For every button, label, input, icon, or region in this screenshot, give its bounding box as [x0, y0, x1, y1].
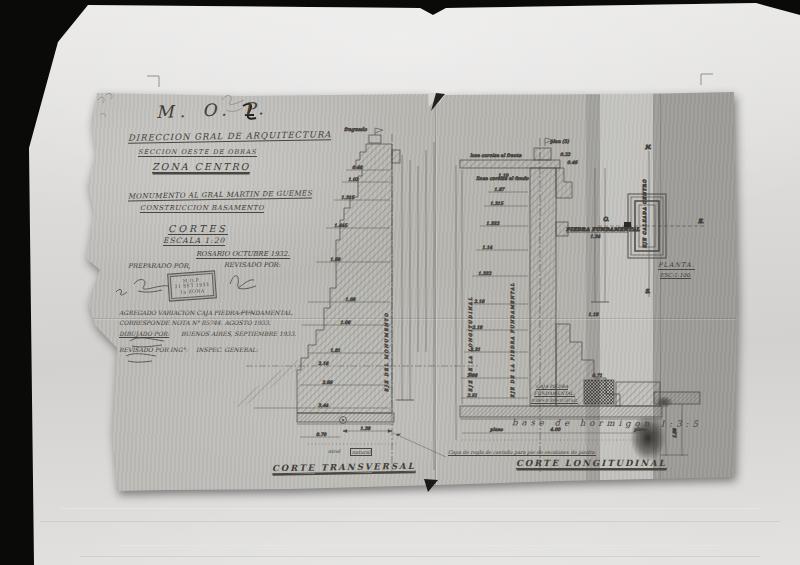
- signature-prepared: [134, 280, 168, 293]
- stamp-line-3: 1a ZONA: [180, 288, 205, 295]
- dim-value: 1.81: [330, 348, 340, 353]
- prepared-by-label: PREPARADO POR,: [128, 262, 190, 270]
- title-cortes: CORTES: [168, 223, 228, 235]
- dim-value: 1.87: [494, 187, 505, 192]
- leader-arrow: [396, 434, 401, 437]
- dim-value: 2.51: [467, 393, 477, 398]
- foundation-stone-box: [584, 380, 614, 404]
- inspector-general-label: INSPEC. GENERAL:: [196, 346, 258, 353]
- monument-profile-transversal: [297, 144, 392, 413]
- cornice-note: losa cornisa al frente: [470, 153, 522, 158]
- axis-label-longitudinal: EJE DE LA LONGITUDINAL: [468, 296, 473, 392]
- revised-by-eng-label: REVISADO POR ING°:: [119, 346, 188, 353]
- dim-value: 1.445: [334, 223, 348, 228]
- box-top-dim: 0.71: [592, 373, 602, 378]
- drawn-by-label: DIBUJADO POR:: [119, 330, 169, 338]
- revised-by-label: REVISADO POR:: [224, 261, 280, 269]
- dim-value: 1.315: [490, 201, 504, 206]
- finial: [369, 135, 381, 143]
- dim-value: 2.16: [318, 361, 329, 366]
- dim-value: 1.88: [330, 257, 341, 262]
- cornice-overhang: [392, 150, 400, 163]
- dim-value: 3.44: [318, 403, 328, 408]
- title-city-date: ROSARIO OCTUBRE 1932.: [196, 250, 290, 259]
- step-layer-note: Capa de regla de castaño para pie de esc…: [448, 449, 596, 456]
- dim-value: 2.66: [322, 380, 333, 385]
- section-transversal: 0.46 1.02 1.315 1.445 1.88 1.08 1.06 1.8…: [234, 126, 478, 474]
- side-dim: 0.22: [560, 152, 571, 157]
- title-construccion: CONSTRUCCION BASAMENTO: [140, 204, 264, 213]
- ground-note-natural: natural: [350, 448, 372, 456]
- foundation-stone-label: PIEDRA FUNDAMENTAL: [566, 226, 640, 232]
- north-label: N.: [645, 144, 651, 150]
- city-date-2: BUENOS AIRES, SEPTIEMBRE 1933.: [181, 330, 296, 337]
- dim-value: 1.02: [348, 177, 359, 182]
- note-leader: [393, 433, 446, 457]
- dim-value: 2.16: [474, 299, 485, 304]
- drawing-linework: 0.46 1.02 1.315 1.445 1.88 1.08 1.06 1.8…: [0, 0, 800, 565]
- ground-note-nivel: nivel: [328, 448, 340, 454]
- finial-flag: [375, 128, 383, 135]
- pencil-marks-edge: [98, 93, 112, 117]
- box-label-3: 0.80×0.80×0.50 alt.: [531, 398, 578, 404]
- dim-value: 1.332: [478, 271, 492, 276]
- note-reference: CORRESPONDE NOTA N° 85744. AGOSTO 1933.: [119, 319, 271, 326]
- top-note-transversal: fraguado: [344, 126, 368, 133]
- cornice-slab: [460, 160, 560, 168]
- footing-row-dim: 4.00: [550, 427, 561, 432]
- note-addendum: AGREGADO VARIACION CAJA PIEDRA FUNDAMENT…: [119, 309, 294, 316]
- side-dim: 1.34: [590, 234, 600, 239]
- dim-value: 1.315: [341, 195, 355, 200]
- title-escala: ESCALA 1:20: [163, 236, 225, 246]
- south-label: S.: [645, 288, 651, 294]
- ground-slope-hatch: [234, 359, 303, 409]
- dim-value: 1.08: [345, 297, 356, 302]
- dim-value: 1.38: [360, 426, 371, 431]
- box-label-2: FUNDAMENTAL.: [534, 391, 575, 397]
- title-seccion: SECCION OESTE DE OBRAS: [138, 148, 257, 157]
- dim-value: 0.70: [316, 432, 327, 437]
- detail-hatch-bar: [654, 392, 700, 404]
- caption-longitudinal: CORTE LONGITUDINAL: [516, 458, 667, 469]
- signature-revised: [230, 276, 256, 289]
- photograph-of-drawing: 0.46 1.02 1.315 1.445 1.88 1.08 1.06 1.8…: [0, 0, 800, 565]
- title-zona: ZONA CENTRO: [152, 161, 250, 173]
- ground-slab-right: [460, 406, 662, 417]
- dim-value: 1.332: [486, 221, 500, 226]
- dim-value: 1.06: [340, 320, 351, 325]
- dim-value: 1.14: [482, 245, 492, 250]
- east-label: E.: [698, 218, 704, 224]
- dim-value: 0.46: [352, 165, 363, 170]
- concrete-base-note: base de hormigon 1:3:5: [512, 417, 702, 429]
- row-word: plano: [489, 427, 503, 432]
- top-cap: [534, 148, 551, 160]
- box-side-hatch: [616, 382, 660, 406]
- axis-label-longitudinal-2: EJE DE LA PIEDRA FUNDAMENTAL: [510, 282, 515, 398]
- cornice-note-2: linea cornisa al fondo: [476, 176, 529, 181]
- side-dim: 1.18: [588, 312, 599, 317]
- top-note-longitudinal: plan (5): [549, 139, 570, 144]
- check-mark: [116, 289, 127, 295]
- planta-caption: PLANTA.: [658, 261, 695, 270]
- date-stamp: M.O.P. 21 SET 1933 1a ZONA: [167, 270, 217, 301]
- side-dim: 0.46: [567, 160, 578, 165]
- box-label-1: CAJA PIEDRA: [536, 384, 568, 390]
- anchor-dot: [342, 419, 344, 421]
- signature-inspector: [126, 354, 156, 362]
- west-label: O.: [603, 216, 609, 222]
- upper-right-step: [556, 168, 572, 198]
- monument-shaft: [530, 168, 556, 406]
- detail-dim: 1.50: [672, 428, 677, 438]
- axis-label-transversal: EJE DEL MONUMENTO: [384, 312, 389, 392]
- agency-title: M. O. P.: [156, 98, 270, 122]
- chain-lines-transversal: [396, 142, 434, 470]
- plan-axis-label: EJE CALZADA CENTRO: [642, 179, 647, 248]
- planta-scale: ESC-1:100.: [660, 272, 691, 279]
- dim-value: 2.18: [472, 325, 483, 330]
